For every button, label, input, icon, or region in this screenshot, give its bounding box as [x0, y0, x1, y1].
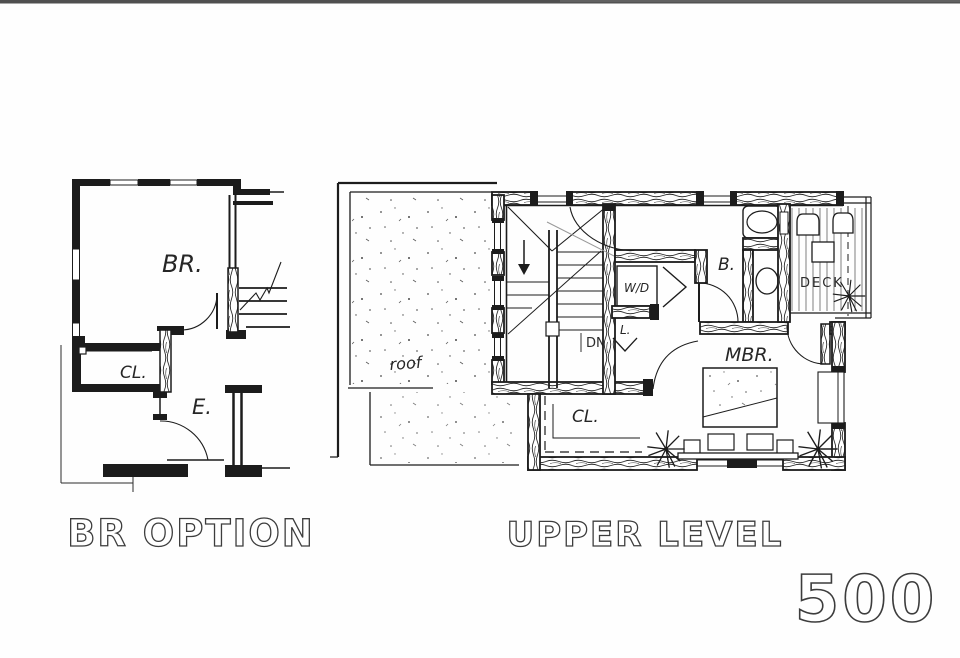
- break-line: [240, 262, 281, 310]
- window: [780, 212, 788, 234]
- scan-edge-artifact: [560, 0, 960, 2]
- newel-post: [546, 322, 559, 336]
- bathroom: B.: [695, 206, 788, 334]
- bedroom-label: BR.: [162, 250, 203, 278]
- closet-label: CL.: [120, 363, 147, 383]
- window: [73, 249, 80, 280]
- door-swing-arc: [181, 295, 217, 330]
- door-swing-arc: [160, 421, 208, 460]
- door-swing-arc: [653, 341, 698, 389]
- door-jamb: [603, 204, 615, 211]
- window: [110, 180, 138, 185]
- left-plan: BR. CL. E.: [61, 179, 290, 492]
- plan-number: 500: [795, 563, 938, 637]
- bath-label: B.: [718, 255, 735, 275]
- door-jamb: [643, 379, 653, 396]
- deck-label: DECK: [800, 276, 844, 291]
- hatched-wall: [228, 268, 238, 332]
- bifold-door: [613, 338, 637, 351]
- master-bedroom-label: MBR.: [725, 344, 774, 366]
- deck: DECK: [790, 197, 871, 318]
- stairs: DN: [507, 207, 606, 388]
- hatched-wall: [160, 330, 171, 392]
- scanned-floor-plan-sheet: BR. CL. E. roof: [0, 0, 960, 658]
- door-jamb: [153, 392, 167, 398]
- roof-area: roof: [330, 183, 519, 465]
- door-swing-arc: [699, 283, 738, 322]
- window: [818, 372, 844, 423]
- i-column: [225, 385, 262, 477]
- door-swing-arc: [787, 326, 825, 364]
- left-plan-title: BR OPTION: [67, 512, 315, 555]
- roof-texture: [372, 392, 517, 463]
- deck-chair: [833, 213, 853, 233]
- upper-level-title: UPPER LEVEL: [507, 515, 784, 555]
- door-leaf: [821, 324, 830, 364]
- stair-treads: [507, 282, 549, 308]
- roof-texture: [352, 194, 490, 384]
- left-plan-walls: [72, 179, 273, 477]
- nightstand: [777, 440, 793, 454]
- left-wall: [492, 195, 507, 384]
- entry-label: E.: [192, 395, 212, 419]
- door-jamb: [153, 414, 167, 420]
- pillow: [747, 434, 773, 450]
- nightstand: [684, 440, 700, 454]
- floor-plan-canvas: BR. CL. E. roof: [0, 0, 960, 658]
- top-wall: [492, 191, 844, 206]
- down-arrow-icon: [518, 264, 530, 275]
- door-pivot: [79, 347, 86, 354]
- linen-label: L.: [620, 323, 631, 337]
- stairs: [239, 262, 290, 327]
- roof-label: roof: [389, 353, 424, 374]
- washer-dryer-closet: W/D: [615, 250, 695, 307]
- stair-treads: [557, 252, 603, 330]
- hatched-wall: [492, 382, 644, 394]
- hatched-wall: [603, 204, 615, 394]
- bifold-door: [663, 267, 686, 307]
- door-jamb: [650, 304, 659, 320]
- deck-chair: [797, 214, 819, 235]
- deck-table: [812, 242, 834, 262]
- washer-dryer-label: W/D: [624, 281, 649, 295]
- upper-level-plan: roof: [330, 183, 871, 470]
- bed: [678, 368, 798, 459]
- headboard: [678, 453, 798, 459]
- toilet: [756, 268, 778, 294]
- window: [170, 180, 197, 185]
- pillow: [708, 434, 734, 450]
- linen-closet: L.: [612, 304, 659, 351]
- upper-closet-label: CL.: [572, 407, 599, 427]
